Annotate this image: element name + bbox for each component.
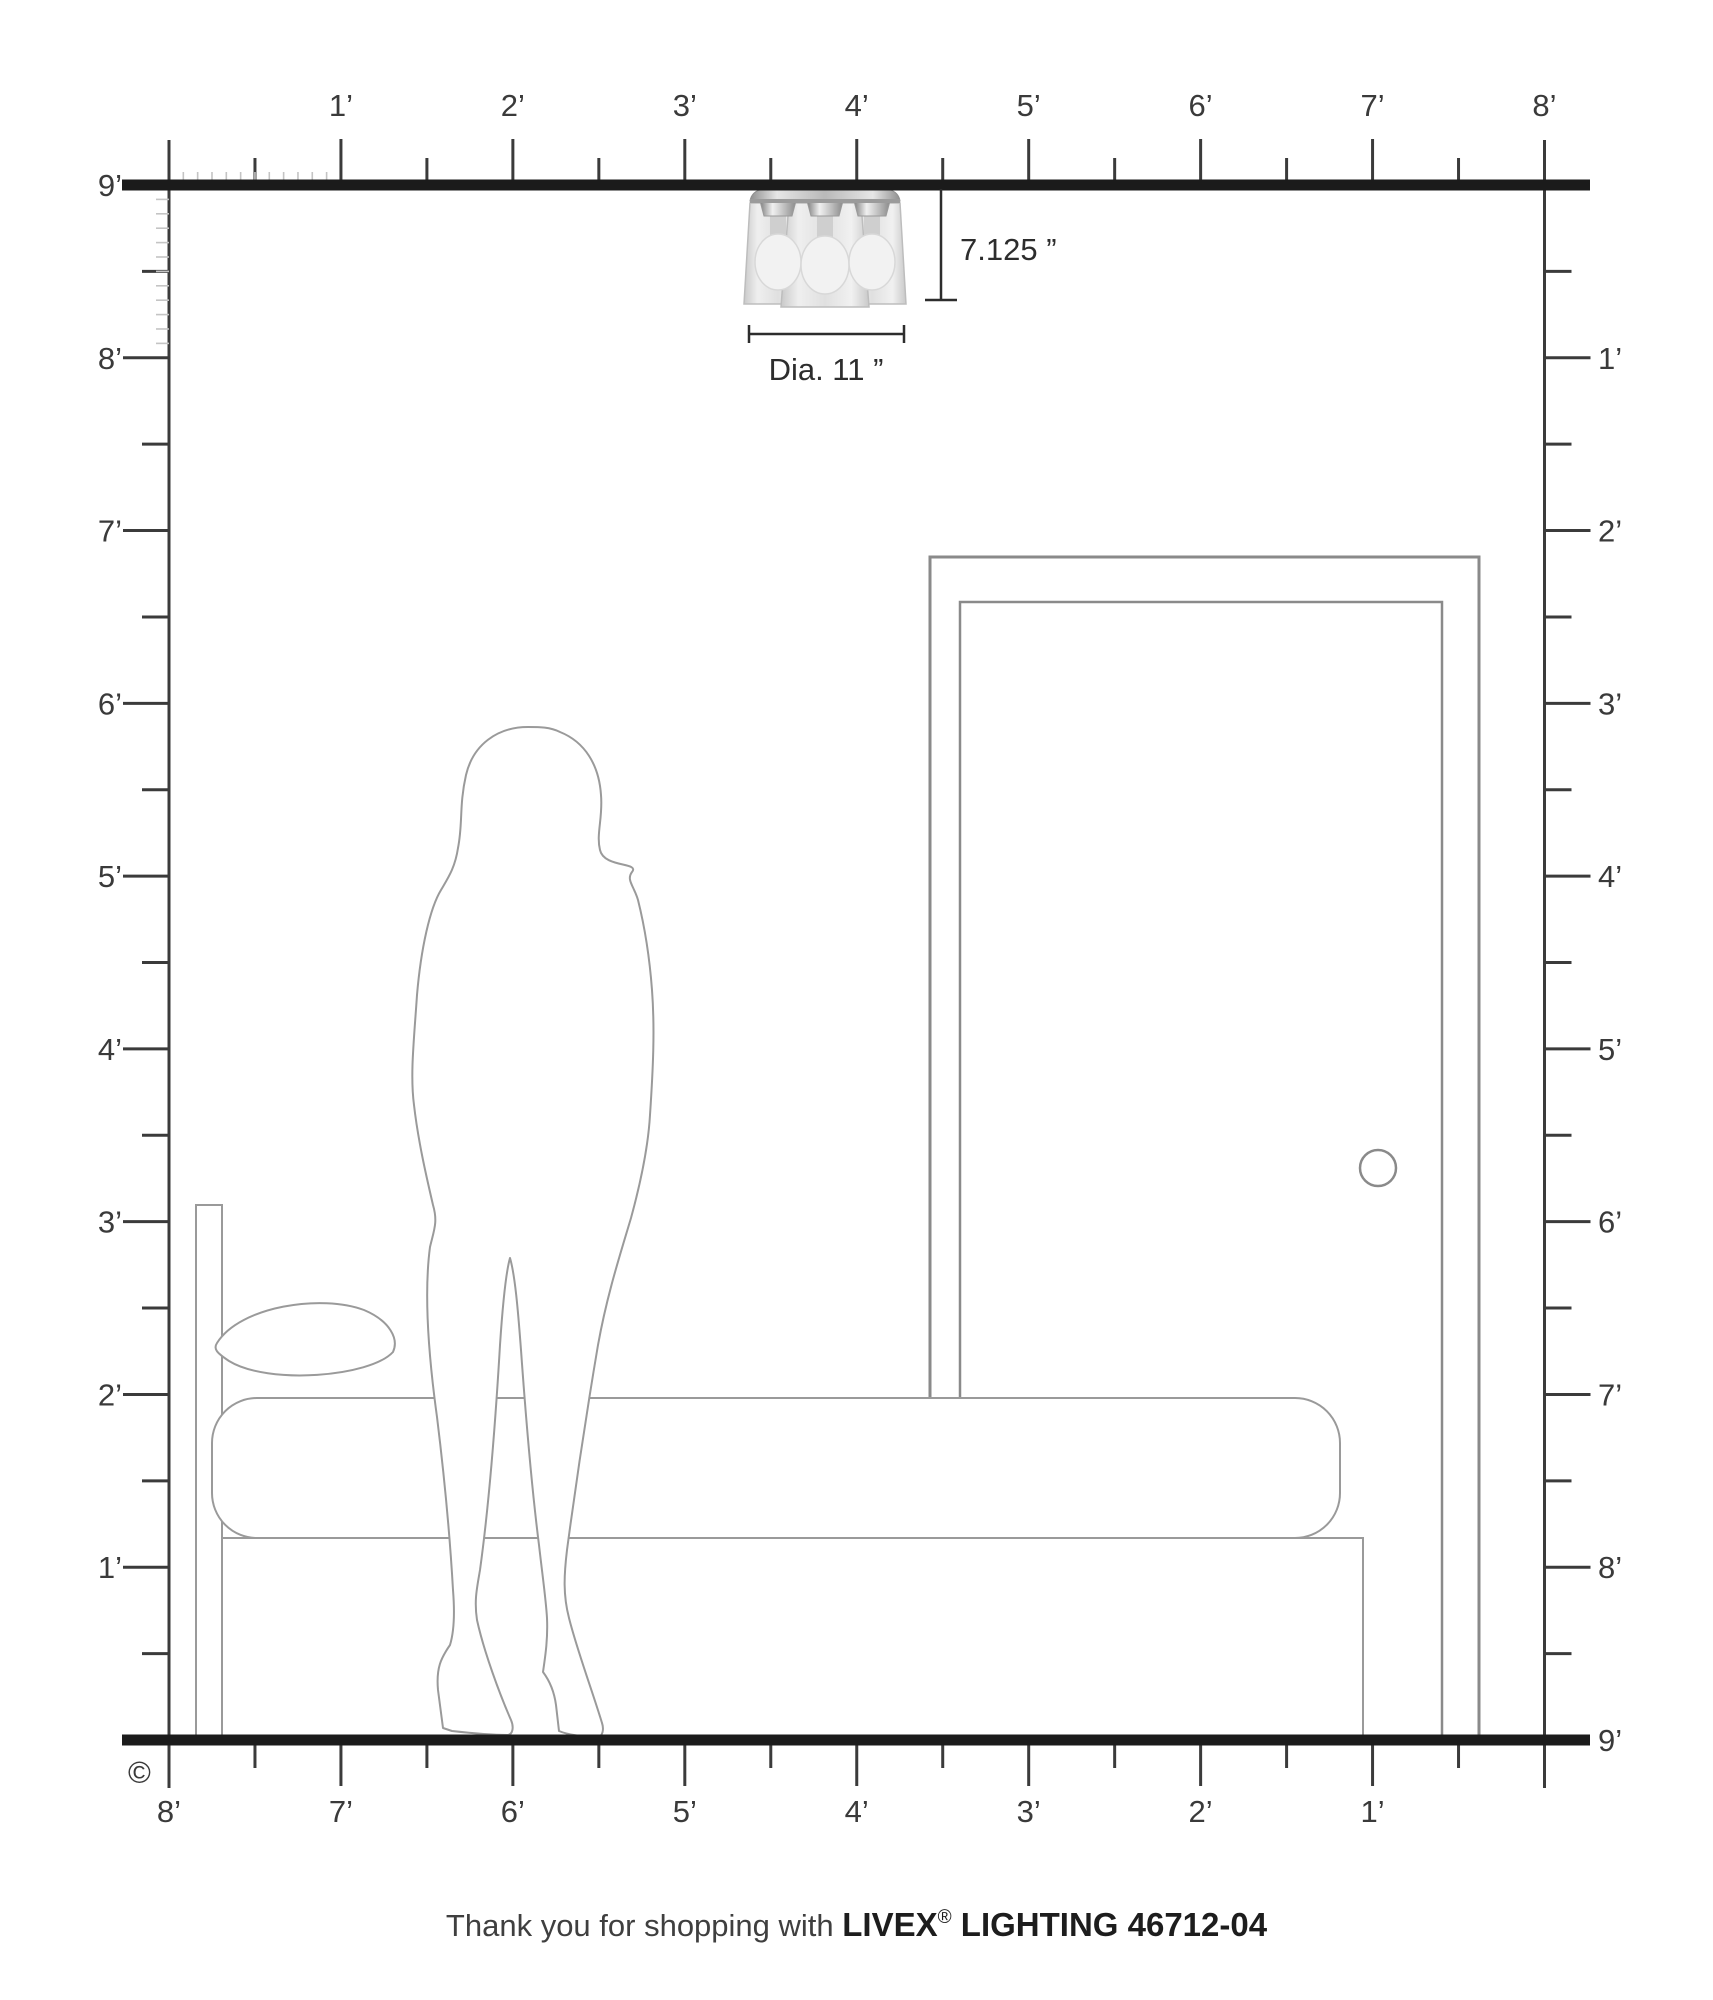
right-ruler-label: 5’ bbox=[1598, 1032, 1622, 1067]
bed-base bbox=[222, 1538, 1363, 1738]
floor-line bbox=[122, 1735, 1590, 1746]
right-ruler-label: 3’ bbox=[1598, 686, 1622, 721]
left-ruler-label: 6’ bbox=[98, 686, 122, 721]
height-dimension bbox=[925, 189, 957, 300]
left-ruler-label: 8’ bbox=[98, 341, 122, 376]
registered-mark: ® bbox=[938, 1907, 952, 1928]
left-ruler-label: 7’ bbox=[98, 514, 122, 549]
footer-prefix: Thank you for shopping with bbox=[446, 1908, 842, 1943]
left-ruler-label: 4’ bbox=[98, 1032, 122, 1067]
left-ruler-label: 2’ bbox=[98, 1377, 122, 1412]
top-ruler-label: 6’ bbox=[1189, 88, 1213, 123]
scale-diagram: 7.125 ” Dia. 11 ” 1’2’3’4’5’6’7’8’8’7’6’… bbox=[0, 0, 1713, 2000]
bed-mattress bbox=[212, 1398, 1340, 1538]
right-ruler-label: 1’ bbox=[1598, 341, 1622, 376]
right-ruler-label: 9’ bbox=[1598, 1723, 1622, 1758]
bottom-ruler-label: 1’ bbox=[1360, 1794, 1384, 1829]
ceiling-light-fixture bbox=[744, 188, 906, 307]
door-knob bbox=[1360, 1150, 1396, 1186]
top-ruler-label: 8’ bbox=[1532, 88, 1556, 123]
socket-cup-right bbox=[854, 201, 890, 216]
footer-text: Thank you for shopping with LIVEX® LIGHT… bbox=[0, 1906, 1713, 1944]
bottom-ruler-label: 2’ bbox=[1189, 1794, 1213, 1829]
top-ruler-label: 5’ bbox=[1017, 88, 1041, 123]
right-ruler-label: 8’ bbox=[1598, 1550, 1622, 1585]
light-bulbs bbox=[755, 212, 895, 294]
ceiling-line bbox=[122, 180, 1590, 191]
socket-cup-center bbox=[807, 201, 843, 216]
footer-brand: LIVEX bbox=[842, 1906, 937, 1943]
height-dimension-label: 7.125 ” bbox=[960, 232, 1057, 267]
diagram-canvas: 7.125 ” Dia. 11 ” 1’2’3’4’5’6’7’8’8’7’6’… bbox=[0, 0, 1713, 2000]
socket-cup-left bbox=[760, 201, 796, 216]
bottom-ruler-label: 4’ bbox=[845, 1794, 869, 1829]
right-ruler-label: 4’ bbox=[1598, 859, 1622, 894]
bottom-ruler-label: 3’ bbox=[1017, 1794, 1041, 1829]
bottom-ruler-label: 7’ bbox=[329, 1794, 353, 1829]
bed-pillow bbox=[216, 1303, 395, 1375]
bottom-ruler-label: 6’ bbox=[501, 1794, 525, 1829]
right-ruler-label: 2’ bbox=[1598, 514, 1622, 549]
top-ruler-label: 1’ bbox=[329, 88, 353, 123]
diameter-dimension-label: Dia. 11 ” bbox=[769, 352, 884, 387]
top-ruler-label: 7’ bbox=[1360, 88, 1384, 123]
diameter-dimension bbox=[749, 325, 904, 343]
left-ruler-label: 5’ bbox=[98, 859, 122, 894]
bottom-ruler-label: 8’ bbox=[157, 1794, 181, 1829]
socket-cups bbox=[760, 201, 890, 216]
light-bulb-right bbox=[849, 234, 895, 290]
bottom-ruler-label: 5’ bbox=[673, 1794, 697, 1829]
top-ruler-label: 2’ bbox=[501, 88, 525, 123]
right-ruler-label: 7’ bbox=[1598, 1377, 1622, 1412]
canopy-trim bbox=[750, 199, 900, 203]
light-bulb-left bbox=[755, 234, 801, 290]
right-ruler-label: 6’ bbox=[1598, 1205, 1622, 1240]
light-bulb-center bbox=[801, 236, 849, 294]
left-ruler-label: 1’ bbox=[98, 1550, 122, 1585]
left-ruler-label: 3’ bbox=[98, 1205, 122, 1240]
footer-product: LIGHTING 46712-04 bbox=[952, 1906, 1267, 1943]
copyright-symbol: © bbox=[128, 1755, 151, 1790]
top-ruler-label: 4’ bbox=[845, 88, 869, 123]
top-ruler-label: 3’ bbox=[673, 88, 697, 123]
left-ruler-label: 9’ bbox=[98, 168, 122, 203]
